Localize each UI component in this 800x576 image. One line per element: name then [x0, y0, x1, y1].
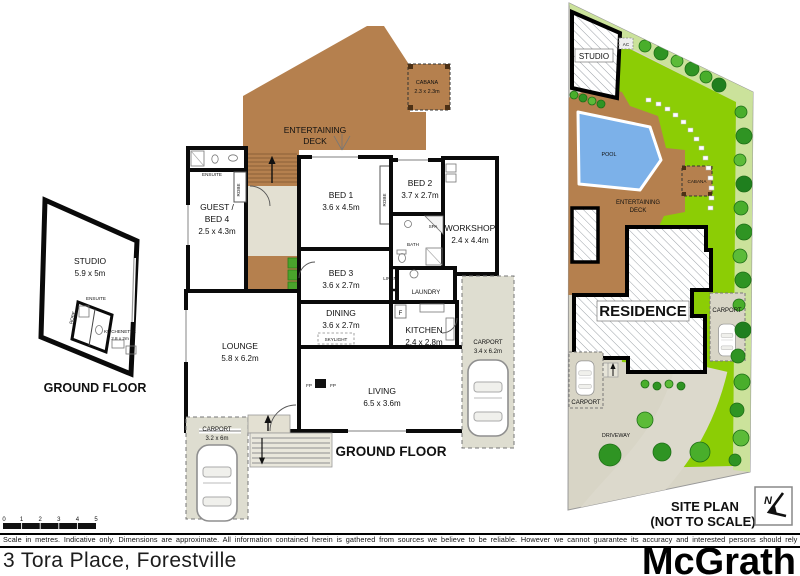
bed3-label: BED 3 — [329, 268, 354, 278]
planter-boxes — [288, 258, 298, 292]
dining-label: DINING — [326, 308, 356, 318]
linen-label: LINEN — [383, 276, 397, 281]
guest-robe-label: ROBE — [236, 183, 241, 196]
skylight-label: SKYLIGHT — [325, 337, 348, 342]
kitchenette-dims: 2.8 x 2m — [111, 336, 129, 341]
laundry-label: LAUNDRY — [412, 290, 441, 296]
cabana-dims: 2.3 x 2.3m — [414, 89, 440, 95]
carport-right-label: CARPORT — [473, 340, 503, 346]
site-deck-label-2: DECK — [630, 208, 647, 214]
studio-ensuite-label: ENSUITE — [86, 296, 106, 301]
bath-label: BATH — [407, 242, 419, 247]
deck-label-1: ENTERTAINING — [284, 125, 347, 135]
site-deck-label-1: ENTERTAINING — [616, 200, 660, 206]
site-carport-left-label: CARPORT — [571, 400, 601, 406]
guest-label-2: BED 4 — [205, 214, 230, 224]
scale-tick: 3 — [57, 517, 61, 523]
cabana-label: CABANA — [416, 80, 439, 86]
guest-dims: 2.5 x 4.3m — [198, 227, 236, 236]
scale-tick: 5 — [94, 517, 98, 523]
carport-left-label: CARPORT — [202, 427, 232, 433]
site-plan: STUDIO AC POOL CABANA ENTERTAINING DECK … — [568, 3, 792, 530]
bed3-dims: 3.6 x 2.7m — [322, 281, 360, 290]
studio-room-label: STUDIO — [74, 256, 107, 266]
living-dims: 6.5 x 3.6m — [363, 399, 401, 408]
floorplan-drawing: STUDIO 5.9 x 5m ENSUITE ROBE KITCHENETTE… — [0, 0, 800, 576]
main-plan-title: GROUND FLOOR — [336, 444, 447, 459]
scale-tick: 0 — [2, 517, 6, 523]
guest-ensuite-label: ENSUITE — [202, 172, 222, 177]
site-residence-label: RESIDENCE — [599, 303, 687, 320]
carport-left-dims: 3.2 x 6m — [205, 436, 228, 442]
studio-room-dims: 5.9 x 5m — [75, 269, 106, 278]
lounge-dims: 5.8 x 6.2m — [221, 354, 259, 363]
north-arrow-icon: N — [755, 487, 792, 525]
living-label: LIVING — [368, 386, 396, 396]
studio-plan-title: GROUND FLOOR — [44, 381, 147, 395]
cabana — [408, 64, 450, 110]
fridge-label: F — [399, 311, 403, 317]
carport-right-dims: 3.4 x 6.2m — [474, 349, 502, 355]
kitchen-dims: 2.4 x 2.8m — [405, 338, 443, 347]
main-floor-plan: CABANA 2.3 x 2.3m ENTERTAINING DECK ENSU… — [184, 26, 515, 521]
bed1-dims: 3.6 x 4.5m — [322, 203, 360, 212]
car-icon — [468, 360, 508, 436]
spa-label: SPA — [429, 224, 439, 229]
site-cabana-label: CABANA — [688, 179, 708, 184]
laundry-room — [397, 268, 455, 304]
workshop-label: WORKSHOP — [445, 223, 496, 233]
fp-left-label: FP — [306, 383, 312, 388]
site-guest-wing — [572, 208, 598, 262]
kitchen-label: KITCHEN — [405, 325, 442, 335]
bed2-dims: 3.7 x 2.7m — [401, 191, 439, 200]
scale-tick: 4 — [76, 517, 80, 523]
site-plan-title: SITE PLAN — [671, 499, 739, 514]
hallway — [246, 186, 299, 256]
dining-dims: 3.6 x 2.7m — [322, 321, 360, 330]
scale-bar: 0 1 2 3 4 5 — [2, 517, 98, 529]
fireplace-icon — [315, 379, 326, 388]
lounge-label: LOUNGE — [222, 341, 258, 351]
car-icon — [197, 445, 237, 521]
scale-tick: 2 — [39, 517, 43, 523]
scale-tick: 1 — [20, 517, 24, 523]
bed1-robe-label: ROBE — [382, 193, 387, 206]
kitchenette-label: KITCHENETTE — [104, 329, 136, 334]
bed1-label: BED 1 — [329, 190, 354, 200]
site-plan-subtitle: (NOT TO SCALE) — [650, 514, 755, 529]
guest-label-1: GUEST / — [200, 202, 234, 212]
driveway-label: DRIVEWAY — [602, 433, 631, 439]
ac-label: AC — [623, 42, 630, 47]
property-address: 3 Tora Place, Forestville — [3, 549, 237, 573]
site-carport-right-label: CARPORT — [712, 308, 742, 314]
bed2-label: BED 2 — [408, 178, 433, 188]
site-pool-label: POOL — [602, 152, 617, 158]
workshop-room — [443, 158, 497, 274]
north-label: N — [764, 495, 773, 507]
workshop-dims: 2.4 x 4.4m — [451, 236, 489, 245]
studio-floor-plan: STUDIO 5.9 x 5m ENSUITE ROBE KITCHENETTE… — [41, 200, 146, 395]
site-studio-label: STUDIO — [579, 52, 609, 61]
car-icon — [576, 361, 594, 395]
fp-right-label: FP — [330, 383, 336, 388]
mcgrath-logo: McGrath — [642, 543, 796, 576]
entry-landing — [248, 415, 290, 433]
deck-label-2: DECK — [303, 136, 327, 146]
floorplan-page: STUDIO 5.9 x 5m ENSUITE ROBE KITCHENETTE… — [0, 0, 800, 576]
